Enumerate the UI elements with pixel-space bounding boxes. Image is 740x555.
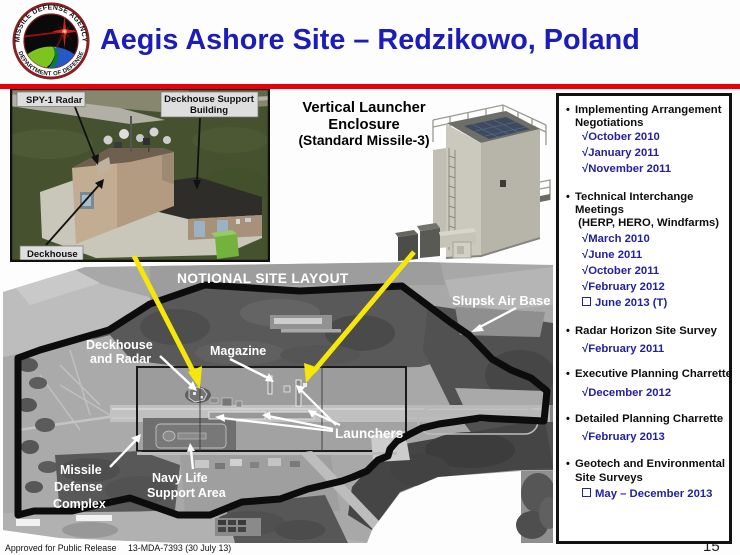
svg-text:and Radar: and Radar — [90, 352, 151, 366]
svg-text:Deckhouse: Deckhouse — [86, 338, 153, 352]
svg-text:Launchers: Launchers — [335, 426, 403, 441]
svg-text:Deckhouse: Deckhouse — [27, 249, 78, 260]
svg-text:Complex: Complex — [53, 497, 106, 511]
svg-text:Deckhouse Support: Deckhouse Support — [164, 94, 255, 105]
svg-text:Building: Building — [190, 105, 228, 116]
svg-text:Slupsk Air Base: Slupsk Air Base — [452, 293, 551, 308]
svg-text:Missile: Missile — [60, 463, 102, 477]
svg-text:Navy Life: Navy Life — [152, 471, 208, 485]
svg-text:Defense: Defense — [54, 480, 103, 494]
svg-text:NOTIONAL SITE LAYOUT: NOTIONAL SITE LAYOUT — [177, 271, 349, 286]
svg-text:Support Area: Support Area — [147, 486, 227, 500]
svg-text:Magazine: Magazine — [210, 344, 266, 358]
svg-text:SPY-1 Radar: SPY-1 Radar — [26, 95, 83, 106]
